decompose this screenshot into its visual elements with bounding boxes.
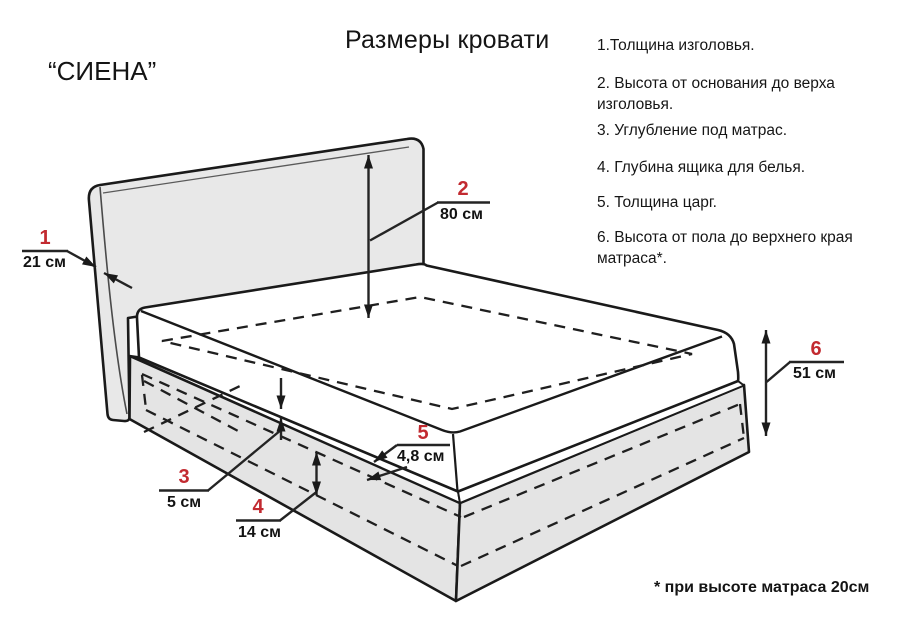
dim-1-value: 21 см: [23, 254, 66, 272]
page-title: Размеры кровати: [345, 26, 549, 55]
dim-6-value: 51 см: [793, 365, 836, 383]
legend-item-1: 1.Толщина изголовья.: [597, 35, 882, 56]
dim-4-value: 14 см: [238, 524, 281, 542]
model-name: “СИЕНА”: [48, 56, 156, 87]
dim-3-number: 3: [178, 466, 189, 489]
footnote: * при высоте матраса 20см: [654, 579, 869, 597]
dim-3-value: 5 см: [167, 494, 201, 512]
dim-2-number: 2: [457, 178, 468, 201]
bed-dimensions-diagram-page: Размеры кровати “СИЕНА” 1.Толщина изголо…: [0, 0, 910, 643]
legend-item-6: 6. Высота от пола до верхнего края матра…: [597, 227, 882, 269]
dim-5-value: 4,8 см: [397, 448, 444, 466]
legend-item-2: 2. Высота от основания до верха изголовь…: [597, 73, 882, 115]
dim-6-number: 6: [810, 338, 821, 361]
legend-item-5: 5. Толщина царг.: [597, 192, 882, 213]
legend-item-4: 4. Глубина ящика для белья.: [597, 157, 882, 178]
dim-1-number: 1: [39, 227, 50, 250]
legend-item-3: 3. Углубление под матрас.: [597, 120, 882, 141]
dim-4-number: 4: [252, 496, 263, 519]
dim-2-value: 80 см: [440, 206, 483, 224]
dim-5-number: 5: [417, 422, 428, 445]
